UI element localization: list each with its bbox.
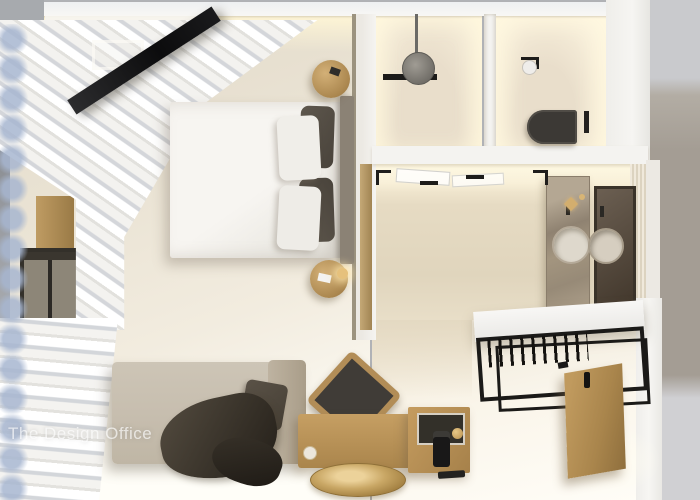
basin-right bbox=[588, 228, 624, 264]
top-wall bbox=[40, 2, 648, 16]
glass-door-clamp bbox=[533, 170, 548, 185]
coffee-machine bbox=[433, 431, 450, 467]
white-pillow bbox=[276, 115, 321, 181]
watermark: The Design Office bbox=[8, 424, 152, 444]
rain-shower-head bbox=[402, 52, 435, 85]
round-brass-table bbox=[310, 463, 406, 497]
basin-left bbox=[552, 226, 590, 264]
glass-door-handle bbox=[420, 181, 438, 185]
door-handle bbox=[584, 372, 590, 388]
room-top-view-render: The Design Office bbox=[0, 0, 700, 500]
faucet-right bbox=[600, 206, 604, 217]
wood-partition-edge bbox=[360, 164, 372, 330]
wooden-console bbox=[298, 414, 412, 468]
white-pillow bbox=[276, 185, 321, 251]
shower-wc-divider-wall bbox=[484, 14, 496, 160]
shower-room-floor bbox=[374, 14, 482, 160]
glass-door-clamp bbox=[376, 170, 391, 185]
glass-door-handle bbox=[466, 175, 484, 179]
gold-accessory bbox=[452, 428, 463, 439]
table-lamp bbox=[337, 268, 348, 279]
wall-hung-toilet bbox=[527, 110, 577, 144]
flush-plate bbox=[584, 111, 589, 133]
toilet-paper-roll bbox=[522, 60, 537, 75]
gold-accessory bbox=[579, 194, 585, 200]
right-wall-mid bbox=[646, 160, 660, 305]
wood-cabinet bbox=[36, 196, 74, 256]
console-accessory bbox=[303, 446, 317, 460]
bed-headboard bbox=[340, 96, 354, 264]
entrance-door bbox=[564, 363, 626, 479]
bathroom-top-wall bbox=[372, 146, 648, 164]
wc-right-wall bbox=[606, 0, 650, 162]
